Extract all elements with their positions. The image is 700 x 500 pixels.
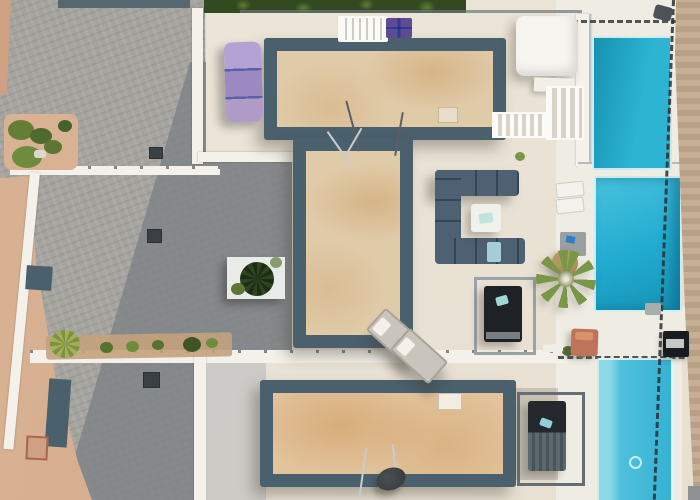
pergola-daybed-2	[528, 401, 566, 471]
wall-cap-mid	[25, 265, 53, 291]
walkway-wall-vertical	[194, 352, 206, 500]
wall-cap-top-left	[58, 0, 190, 8]
lounger-towel	[396, 337, 416, 357]
palm-tree	[536, 250, 596, 308]
purple-storage-box	[386, 18, 412, 38]
yellow-palm-bush	[50, 330, 80, 358]
roof-vent-box	[438, 107, 458, 123]
canopy-daybed	[484, 286, 522, 342]
bush-2	[126, 341, 139, 352]
coffee-table	[471, 204, 501, 232]
roof-vent-box-2	[438, 393, 462, 410]
bush-5	[206, 338, 218, 348]
roof-edge-wall-horizontal	[198, 152, 294, 162]
railing-vertical	[546, 86, 584, 140]
outdoor-sofa-bottom	[435, 238, 525, 264]
chair-backrest	[575, 332, 593, 341]
white-lounger-2	[555, 197, 584, 215]
manhole-2	[147, 229, 162, 243]
garden-rocks	[34, 150, 46, 158]
terracotta-chair	[571, 329, 599, 357]
barbecue-grill	[663, 331, 689, 357]
garden-plant-4	[44, 140, 62, 154]
planter-bush	[231, 283, 245, 295]
lounger-towel	[372, 317, 392, 337]
railing-horizontal	[492, 112, 548, 138]
planter-palm-ball	[240, 262, 274, 296]
pergola-canopy	[516, 16, 578, 76]
white-slatted-bench	[338, 16, 388, 42]
daybed-pillow-2	[539, 417, 553, 429]
palm-crown	[558, 271, 574, 287]
roof-edge-line	[240, 10, 582, 13]
purple-sun-mattress-stack	[224, 41, 264, 122]
white-lounger-1	[555, 181, 584, 199]
manhole-3	[143, 372, 160, 388]
swimming-pool-1	[592, 36, 672, 170]
aerial-villa-photo	[0, 0, 700, 500]
blue-seat-cushion	[487, 242, 501, 262]
bush-3	[152, 340, 164, 350]
small-white-bench	[543, 343, 564, 352]
bush-1	[100, 342, 113, 353]
swimming-pool-3	[597, 358, 673, 500]
gray-pillar	[645, 303, 661, 315]
planter-plant-small	[270, 257, 282, 268]
wall-cap-lower	[45, 378, 72, 447]
manhole-1	[149, 147, 163, 159]
rooftop-terrace-1	[264, 38, 506, 140]
roof-edge-wall-vertical	[192, 8, 203, 164]
deck-shadow-bottom-left	[206, 363, 266, 500]
pool-drain	[629, 456, 642, 469]
garden-plant-5	[58, 120, 72, 132]
swimming-pool-2	[594, 176, 682, 312]
daybed-pillow	[495, 295, 509, 307]
daybed-footrail	[486, 332, 520, 339]
small-plant-3	[515, 152, 525, 161]
bush-4	[183, 337, 201, 352]
gray-corner	[688, 486, 700, 500]
grill-panel	[666, 339, 684, 348]
serving-tray	[478, 212, 493, 224]
drain-frame	[25, 435, 48, 460]
blue-towel	[565, 235, 575, 243]
